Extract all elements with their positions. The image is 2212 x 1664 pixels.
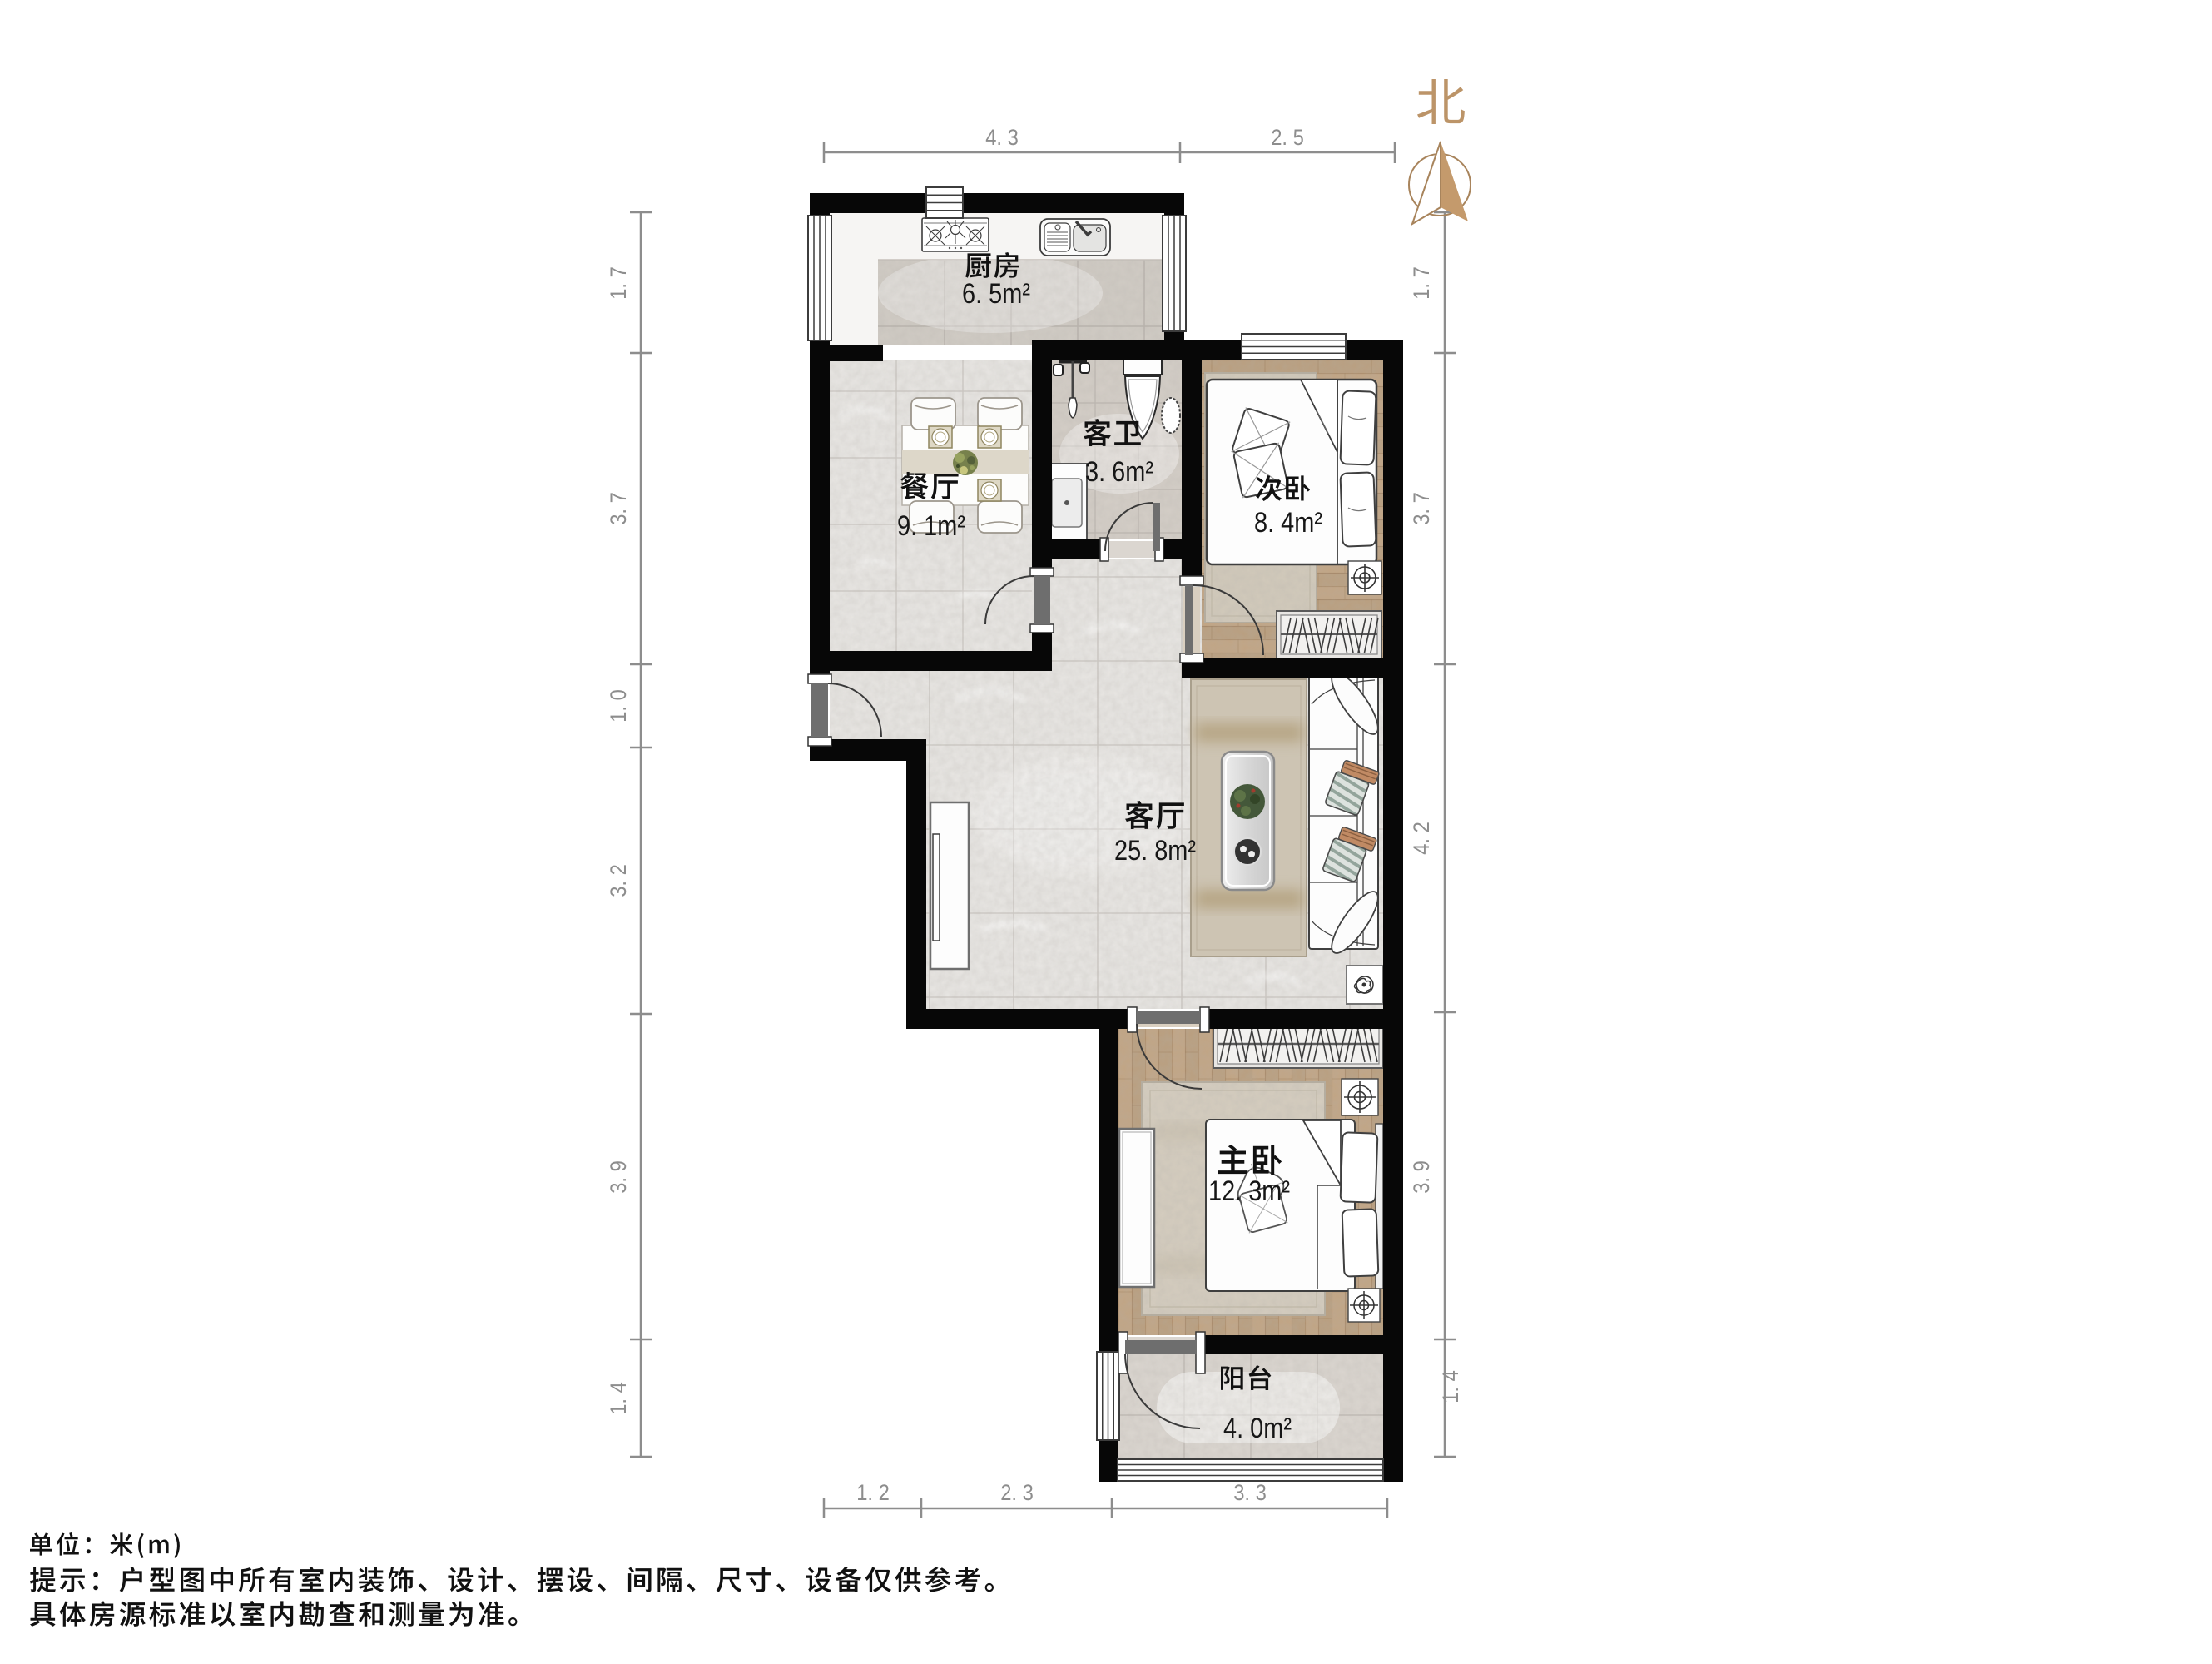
svg-text:1. 2: 1. 2 [856, 1481, 890, 1506]
svg-text:6. 5m²: 6. 5m² [962, 277, 1030, 310]
svg-text:3. 9: 3. 9 [1410, 1160, 1435, 1194]
svg-text:1. 7: 1. 7 [607, 266, 632, 300]
svg-text:1. 4: 1. 4 [1439, 1370, 1464, 1403]
svg-text:3. 7: 3. 7 [1410, 492, 1435, 525]
svg-text:12. 3m²: 12. 3m² [1208, 1175, 1290, 1207]
svg-text:25. 8m²: 25. 8m² [1114, 834, 1196, 867]
svg-text:3. 6m²: 3. 6m² [1085, 455, 1153, 488]
svg-text:4. 0m²: 4. 0m² [1223, 1412, 1292, 1444]
svg-text:1. 7: 1. 7 [1410, 266, 1435, 300]
svg-text:4. 2: 4. 2 [1410, 822, 1435, 855]
svg-text:1. 4: 1. 4 [607, 1382, 632, 1415]
svg-text:3. 7: 3. 7 [607, 492, 632, 525]
svg-text:3. 2: 3. 2 [607, 864, 632, 897]
svg-text:9. 1m²: 9. 1m² [897, 509, 965, 542]
svg-text:4. 3: 4. 3 [985, 126, 1019, 151]
svg-text:8. 4m²: 8. 4m² [1254, 506, 1322, 539]
svg-text:2. 3: 2. 3 [1000, 1481, 1034, 1506]
svg-text:3. 3: 3. 3 [1233, 1481, 1267, 1506]
svg-text:1. 0: 1. 0 [607, 689, 632, 723]
svg-text:2. 5: 2. 5 [1271, 126, 1304, 151]
svg-text:3. 9: 3. 9 [607, 1160, 632, 1194]
